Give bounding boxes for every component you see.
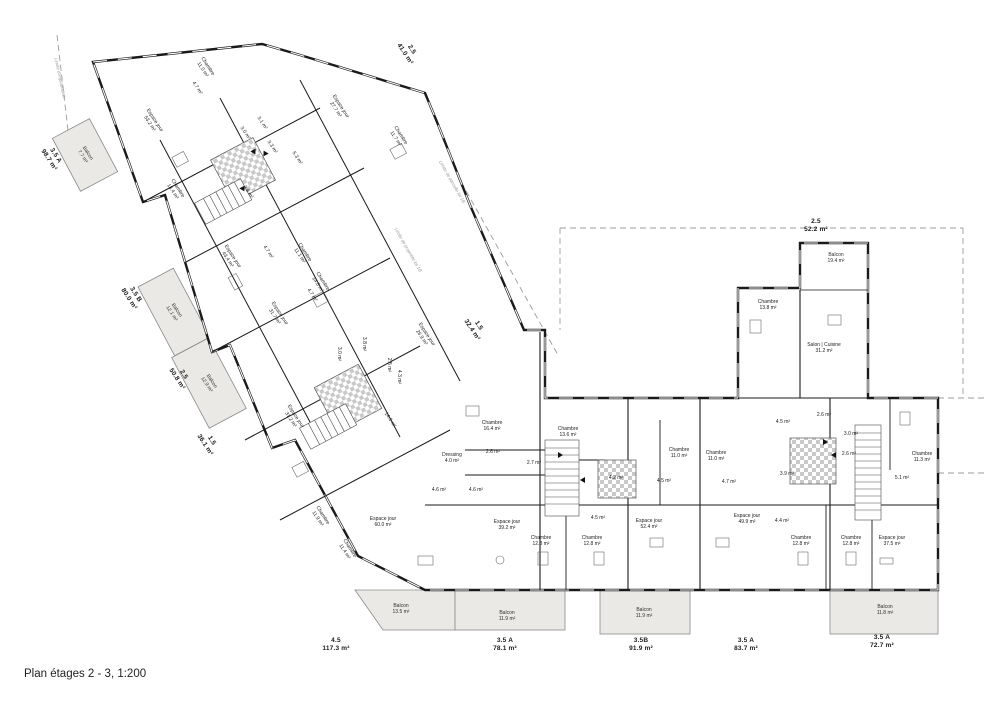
plan-title: Plan étages 2 - 3, 1:200 <box>24 668 146 680</box>
floor-plan-drawing <box>0 0 984 702</box>
building-outline <box>93 44 938 590</box>
floor-plan-sheet: 2.541.0 m²3.5 A98.7 m²3.5 B80.0 m²2.550.… <box>0 0 984 702</box>
